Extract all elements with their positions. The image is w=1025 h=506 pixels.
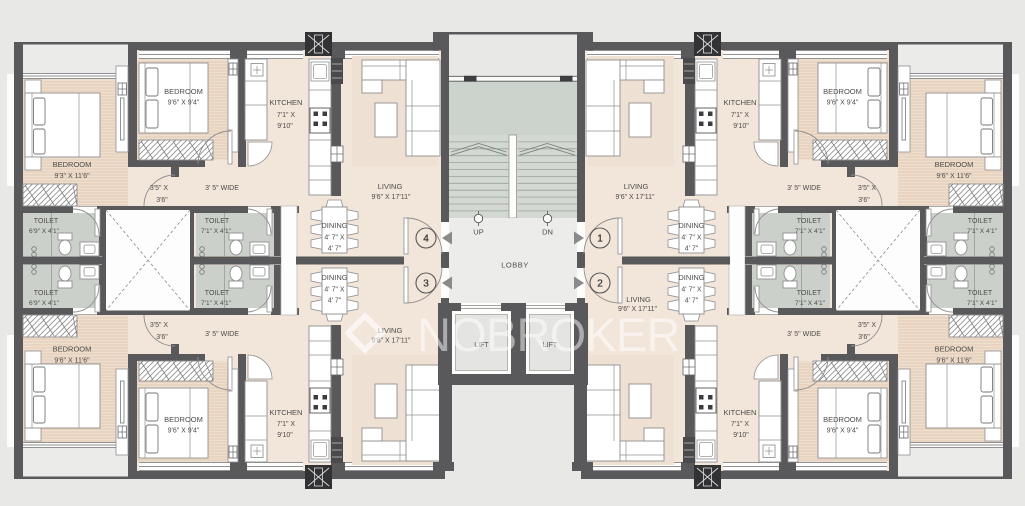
svg-text:3' 5" WIDE: 3' 5" WIDE	[787, 331, 821, 338]
svg-text:9'10": 9'10"	[733, 123, 749, 130]
svg-text:TOILET: TOILET	[34, 218, 59, 225]
svg-text:3'6": 3'6"	[156, 197, 168, 204]
svg-text:3'5" X: 3'5" X	[858, 322, 877, 329]
svg-text:9'10": 9'10"	[277, 432, 293, 439]
svg-text:4' 7": 4' 7"	[685, 246, 699, 253]
svg-text:BEDROOM: BEDROOM	[164, 87, 203, 96]
svg-text:BEDROOM: BEDROOM	[935, 344, 974, 353]
svg-text:9'6" X 9'4": 9'6" X 9'4"	[827, 100, 859, 107]
svg-text:9'6" X 9'4": 9'6" X 9'4"	[168, 427, 200, 434]
svg-text:3'6": 3'6"	[858, 334, 870, 341]
svg-text:6'9" X 4'1": 6'9" X 4'1"	[29, 228, 60, 235]
svg-text:DINING: DINING	[321, 221, 347, 230]
svg-text:TOILET: TOILET	[205, 218, 230, 225]
svg-text:3'5" X: 3'5" X	[858, 185, 877, 192]
svg-text:6'9" X 4'1": 6'9" X 4'1"	[29, 300, 60, 307]
svg-text:NOBROKER: NOBROKER	[417, 308, 680, 361]
svg-text:3' 5" WIDE: 3' 5" WIDE	[205, 331, 239, 338]
svg-text:4' 7" X: 4' 7" X	[324, 286, 344, 293]
svg-text:9'6" X 11'6": 9'6" X 11'6"	[54, 357, 90, 364]
svg-text:1: 1	[597, 233, 603, 244]
svg-text:9'3" X 11'6": 9'3" X 11'6"	[54, 173, 90, 180]
svg-text:4: 4	[423, 233, 429, 244]
svg-text:3'6": 3'6"	[858, 197, 870, 204]
svg-text:4' 7": 4' 7"	[328, 297, 342, 304]
svg-text:TOILET: TOILET	[205, 290, 230, 297]
svg-text:BEDROOM: BEDROOM	[164, 415, 203, 424]
svg-text:LIVING: LIVING	[378, 182, 403, 191]
svg-text:7'1" X 4'1": 7'1" X 4'1"	[967, 228, 998, 235]
svg-text:7'1" X 4'1": 7'1" X 4'1"	[967, 300, 998, 307]
svg-text:9'6" X 9'4": 9'6" X 9'4"	[168, 100, 200, 107]
svg-text:TOILET: TOILET	[968, 290, 993, 297]
svg-text:KITCHEN: KITCHEN	[270, 98, 303, 107]
svg-text:3' 5" WIDE: 3' 5" WIDE	[787, 185, 821, 192]
svg-text:3'5" X: 3'5" X	[150, 185, 169, 192]
svg-text:4' 7": 4' 7"	[685, 297, 699, 304]
svg-text:7'1" X 4'1": 7'1" X 4'1"	[201, 228, 232, 235]
svg-text:3' 5" WIDE: 3' 5" WIDE	[205, 185, 239, 192]
svg-text:7'1" X: 7'1" X	[731, 112, 750, 119]
svg-text:BEDROOM: BEDROOM	[823, 415, 862, 424]
svg-text:7'1" X 4'1": 7'1" X 4'1"	[795, 300, 826, 307]
svg-text:KITCHEN: KITCHEN	[724, 98, 757, 107]
svg-text:9'6" X 17'11": 9'6" X 17'11"	[615, 194, 655, 201]
svg-text:3'6": 3'6"	[156, 334, 168, 341]
svg-text:4' 7" X: 4' 7" X	[324, 235, 344, 242]
svg-text:9'6" X 17'11": 9'6" X 17'11"	[371, 194, 411, 201]
svg-text:9'6" X 11'6": 9'6" X 11'6"	[936, 173, 972, 180]
svg-text:9'10": 9'10"	[277, 123, 293, 130]
svg-text:9'6" X 9'4": 9'6" X 9'4"	[827, 427, 859, 434]
svg-text:TOILET: TOILET	[34, 290, 59, 297]
svg-text:7'1" X: 7'1" X	[277, 112, 296, 119]
svg-text:TOILET: TOILET	[797, 218, 822, 225]
svg-text:7'1" X 4'1": 7'1" X 4'1"	[201, 300, 232, 307]
svg-text:4' 7" X: 4' 7" X	[681, 235, 701, 242]
svg-text:DINING: DINING	[678, 273, 704, 282]
svg-text:BEDROOM: BEDROOM	[935, 160, 974, 169]
svg-text:TOILET: TOILET	[968, 218, 993, 225]
svg-text:DINING: DINING	[321, 273, 347, 282]
svg-text:BEDROOM: BEDROOM	[53, 344, 92, 353]
svg-text:3: 3	[423, 278, 429, 289]
svg-text:7'1" X: 7'1" X	[277, 421, 296, 428]
svg-text:7'1" X: 7'1" X	[731, 421, 750, 428]
svg-text:4' 7": 4' 7"	[328, 246, 342, 253]
svg-text:DINING: DINING	[678, 221, 704, 230]
svg-text:LIVING: LIVING	[624, 182, 649, 191]
svg-text:7'1" X 4'1": 7'1" X 4'1"	[795, 228, 826, 235]
svg-text:KITCHEN: KITCHEN	[724, 408, 757, 417]
svg-text:9'6" X 11'6": 9'6" X 11'6"	[936, 357, 972, 364]
svg-text:9'10": 9'10"	[733, 432, 749, 439]
svg-text:LIVING: LIVING	[626, 295, 651, 304]
svg-text:DN: DN	[542, 228, 553, 237]
svg-text:2: 2	[597, 278, 603, 289]
svg-text:KITCHEN: KITCHEN	[270, 408, 303, 417]
svg-text:4' 7" X: 4' 7" X	[681, 286, 701, 293]
svg-text:BEDROOM: BEDROOM	[53, 160, 92, 169]
svg-text:LOBBY: LOBBY	[501, 261, 529, 270]
svg-text:TOILET: TOILET	[797, 290, 822, 297]
svg-text:3'5" X: 3'5" X	[150, 322, 169, 329]
svg-text:BEDROOM: BEDROOM	[823, 87, 862, 96]
svg-text:UP: UP	[473, 228, 483, 237]
